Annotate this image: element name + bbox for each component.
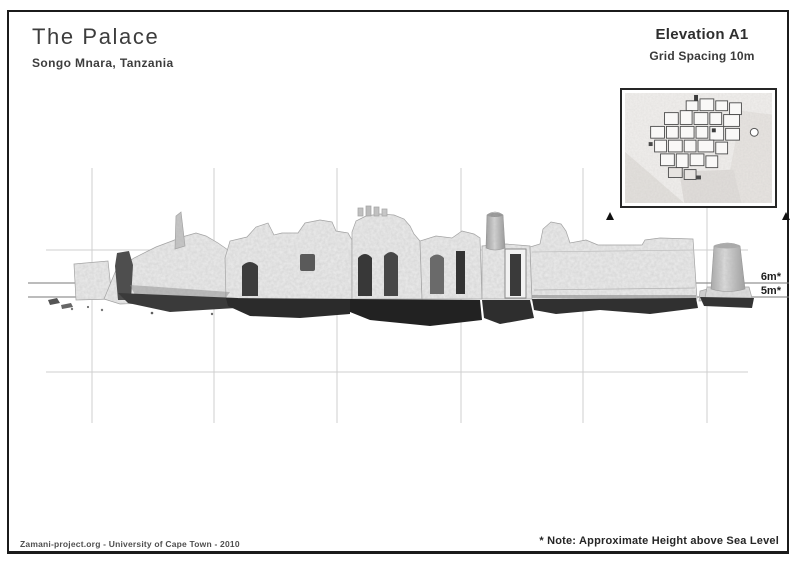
central-right-wall — [420, 231, 482, 299]
drawing-sheet: The Palace Songo Mnara, Tanzania Elevati… — [0, 0, 800, 567]
middle-tower-top — [487, 213, 503, 217]
palace-elevation-render — [48, 206, 754, 326]
right-tower — [711, 243, 745, 292]
elevation-drawing: 6m* 5m* — [0, 0, 800, 567]
wall-top-tooth — [358, 208, 363, 216]
height-label-6m: 6m* — [761, 271, 782, 283]
middle-tower — [486, 212, 505, 250]
dark-pillar — [115, 251, 133, 300]
wall-top-tooth — [382, 209, 387, 216]
project-credit: Zamani-project.org - University of Cape … — [20, 539, 240, 549]
height-label-5m: 5m* — [761, 285, 782, 297]
plan-well-circle — [750, 128, 758, 136]
right-tower-top — [714, 244, 740, 249]
section-markers — [606, 212, 790, 220]
site-plan-inset — [620, 88, 777, 208]
section-marker-right — [782, 212, 790, 220]
wall-top-tooth — [366, 206, 371, 216]
sea-level-note: * Note: Approximate Height above Sea Lev… — [539, 535, 779, 547]
spike-ruin — [175, 212, 185, 249]
wall-top-tooth — [374, 207, 379, 216]
site-plan-map — [625, 93, 772, 203]
section-marker-left — [606, 212, 614, 220]
